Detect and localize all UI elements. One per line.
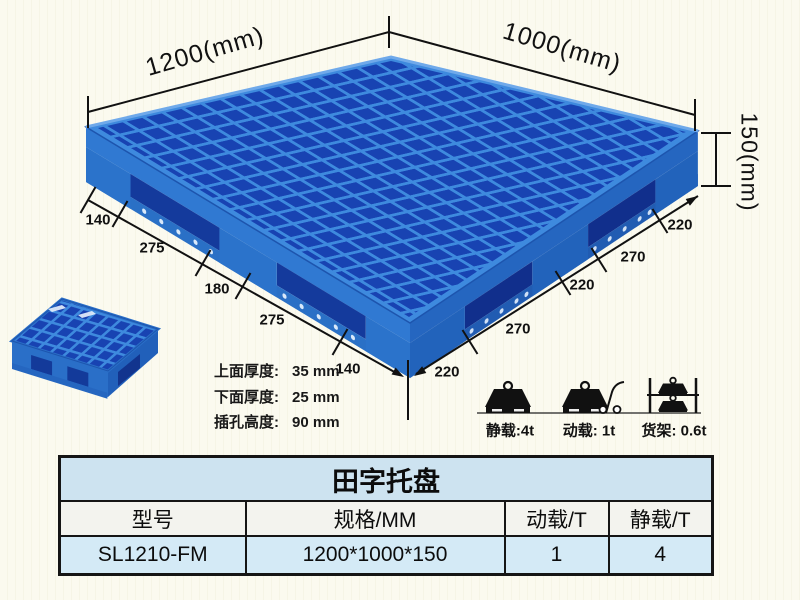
- static-load-icon: [485, 382, 531, 413]
- right-chain-dim-3: 220: [569, 277, 594, 294]
- spec-fork-height-label: 插孔高度:: [214, 414, 279, 431]
- spec-bottom-thickness-label: 下面厚度:: [214, 389, 279, 406]
- cell-size: 1200*1000*150: [246, 536, 505, 575]
- col-header-dynamic-load: 动载/T: [505, 501, 609, 536]
- product-sheet: { "background": "#fafaf0", "colors": { "…: [0, 0, 800, 600]
- dynamic-load-icon: [562, 382, 624, 413]
- left-chain-dim-1: 140: [85, 212, 110, 229]
- spec-top-thickness-label: 上面厚度:: [214, 363, 279, 380]
- left-chain-dim-4: 275: [259, 312, 284, 329]
- right-chain-dim-2: 270: [505, 321, 530, 338]
- spec-fork-height: 插孔高度:90 mm: [214, 411, 340, 432]
- col-header-static-load: 静载/T: [609, 501, 713, 536]
- spec-table-data-row: SL1210-FM 1200*1000*150 1 4: [60, 536, 713, 575]
- left-chain-dim-2: 275: [139, 240, 164, 257]
- spec-bottom-thickness-value: 25 mm: [292, 389, 340, 406]
- small-pallet-thumbnail: [12, 299, 158, 399]
- spec-top-thickness-value: 35 mm: [292, 363, 340, 380]
- rack-load-icon: [647, 378, 699, 413]
- cell-dynamic-load: 1: [505, 536, 609, 575]
- dynamic-load-label: 动载: 1t: [563, 420, 616, 441]
- height-dimension-label: 150(mm): [736, 112, 763, 211]
- spec-top-thickness: 上面厚度:35 mm: [214, 360, 340, 381]
- rack-load-label: 货架: 0.6t: [641, 420, 706, 441]
- right-chain-dim-4: 270: [620, 249, 645, 266]
- col-header-model: 型号: [60, 501, 246, 536]
- load-icons: [477, 378, 701, 413]
- spec-bottom-thickness: 下面厚度:25 mm: [214, 386, 340, 407]
- spec-table-title-row: 田字托盘: [60, 457, 713, 502]
- spec-table-title: 田字托盘: [60, 457, 713, 502]
- spec-table-header-row: 型号 规格/MM 动载/T 静载/T: [60, 501, 713, 536]
- right-chain-dim-1: 220: [434, 364, 459, 381]
- col-header-size: 规格/MM: [246, 501, 505, 536]
- static-load-label: 静载:4t: [486, 420, 534, 441]
- spec-fork-height-value: 90 mm: [292, 414, 340, 431]
- spec-table: 田字托盘 型号 规格/MM 动载/T 静载/T SL1210-FM 1200*1…: [58, 455, 714, 576]
- cell-static-load: 4: [609, 536, 713, 575]
- cell-model: SL1210-FM: [60, 536, 246, 575]
- left-chain-dim-3: 180: [204, 281, 229, 298]
- right-chain-dim-5: 220: [667, 217, 692, 234]
